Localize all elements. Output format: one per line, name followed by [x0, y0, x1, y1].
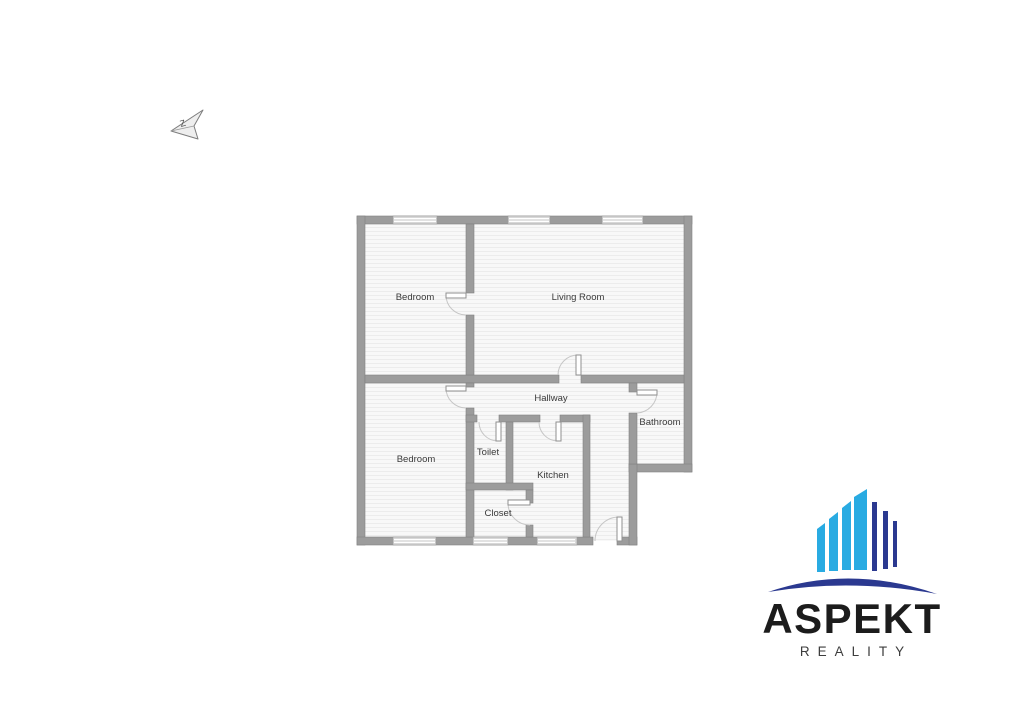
- wall-toilet-right: [506, 422, 513, 490]
- window-kitchen: [537, 537, 577, 545]
- window-bedroom1: [393, 216, 437, 224]
- window-living-room-1: [508, 216, 550, 224]
- room-label-living-room: Living Room: [552, 292, 605, 303]
- wall-hallway-seg1: [466, 415, 477, 422]
- wall-outer-lower-right: [629, 464, 637, 545]
- logo-building-icon: [817, 489, 897, 572]
- window-living-room-2: [602, 216, 643, 224]
- wall-closet-right-bottom: [526, 525, 533, 537]
- wall-divider-right: [581, 375, 684, 383]
- wall-bedroom1-lower: [466, 315, 474, 375]
- wall-outer-right: [684, 216, 692, 472]
- wall-bathroom-left: [629, 413, 637, 464]
- wall-bathroom-bottom: [629, 464, 692, 472]
- room-label-toilet: Toilet: [477, 447, 500, 458]
- wall-toilet-closet: [466, 483, 533, 490]
- window-bedroom2: [393, 537, 436, 545]
- wall-bedroom1-upper: [466, 224, 474, 293]
- wall-bedroom2-main: [466, 408, 474, 537]
- room-label-kitchen: Kitchen: [537, 470, 569, 481]
- wall-bathroom-left-stub: [629, 383, 637, 392]
- wall-hallway-seg2: [499, 415, 540, 422]
- room-label-bedroom-2: Bedroom: [397, 454, 436, 465]
- room-label-bedroom-1: Bedroom: [396, 292, 435, 303]
- logo-wordmark: ASPEKT: [762, 595, 941, 642]
- exterior-cutout: [637, 472, 692, 545]
- wall-outer-left: [357, 216, 365, 545]
- room-label-closet: Closet: [485, 508, 512, 519]
- logo-subtitle: REALITY: [800, 644, 912, 659]
- compass-arrow-shape: [171, 110, 203, 139]
- room-label-bathroom: Bathroom: [639, 417, 680, 428]
- logo: ASPEKT REALITY: [752, 486, 962, 671]
- wall-kitchen-right: [583, 415, 590, 537]
- logo-swoosh: [768, 578, 937, 594]
- window-closet: [473, 537, 508, 545]
- compass-north-arrow: Z: [171, 110, 203, 139]
- wall-bedroom2-stub: [466, 383, 474, 387]
- room-label-hallway: Hallway: [534, 393, 568, 404]
- wall-divider-left: [365, 375, 559, 383]
